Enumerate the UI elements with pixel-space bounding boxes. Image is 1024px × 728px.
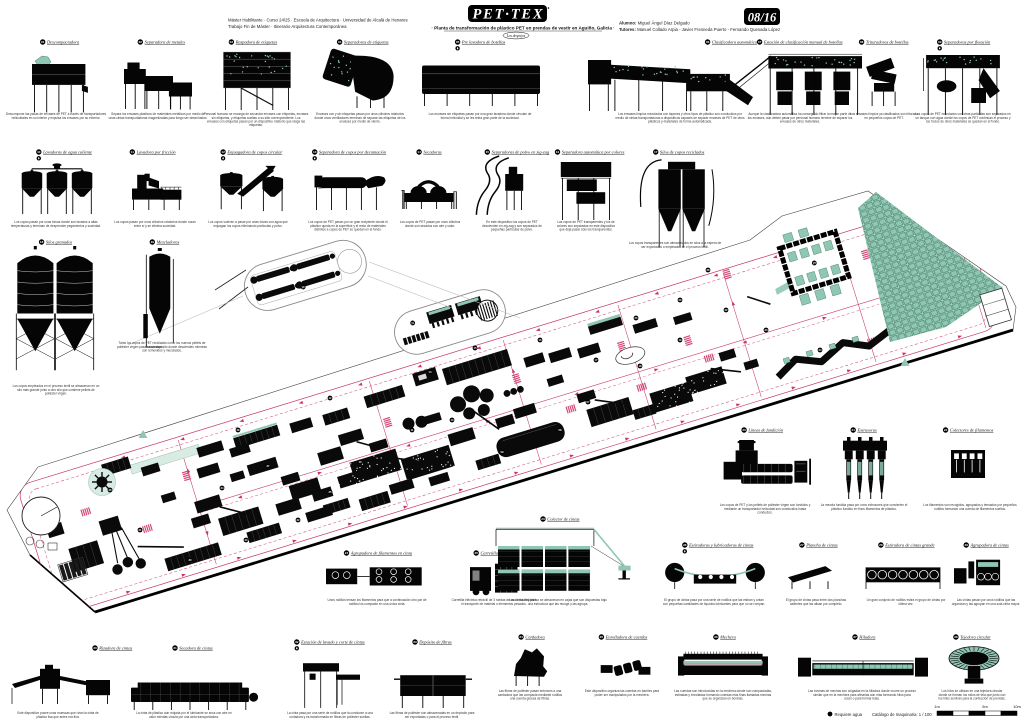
svg-text:13: 13 (451, 418, 454, 422)
svg-text:31: 31 (139, 528, 142, 532)
svg-text:Trituradoras de botellas: Trituradoras de botellas (866, 39, 909, 44)
svg-text:22: 22 (725, 308, 728, 312)
svg-text:37: 37 (267, 464, 270, 468)
svg-text:15: 15 (474, 346, 477, 350)
svg-text:Secadoras: Secadoras (423, 149, 442, 154)
svg-text:32: 32 (297, 518, 300, 522)
svg-text:Rizadora de cintas: Rizadora de cintas (98, 645, 132, 650)
svg-text:16: 16 (556, 150, 560, 154)
svg-text:Estación de lavado y corte de: Estación de lavado y corte de cintas (300, 639, 365, 644)
svg-text:Colector de cintas: Colector de cintas (547, 516, 579, 521)
svg-text:17: 17 (595, 358, 598, 362)
svg-text:5m: 5m (982, 704, 988, 709)
svg-text:Depósito de fibras: Depósito de fibras (418, 639, 452, 644)
svg-text:33: 33 (245, 538, 248, 542)
svg-text:24: 24 (819, 348, 822, 352)
svg-text:Los copos de PET pasan por un: Los copos de PET pasan por un gran recip… (308, 220, 388, 231)
svg-text:Pre lavadora de botellas: Pre lavadora de botellas (461, 39, 506, 44)
svg-text:04: 04 (338, 40, 342, 44)
svg-text:Las copos de PET transparentes: Las copos de PET transparentes y los dec… (557, 220, 616, 231)
svg-text:14: 14 (417, 150, 421, 154)
svg-text:Lavadoras de agua caliente: Lavadoras de agua caliente (42, 149, 92, 154)
svg-text:Separadoras de etiquetas: Separadoras de etiquetas (344, 39, 389, 44)
svg-text:19: 19 (679, 338, 682, 342)
svg-text:Plancha de cintas: Plancha de cintas (805, 542, 838, 547)
svg-text:15: 15 (486, 150, 490, 154)
svg-text:Extrusoras: Extrusoras (857, 427, 878, 432)
svg-text:Catálogo de maquinaria: 1 / 10: Catálogo de maquinaria: 1 / 100 (872, 712, 932, 717)
svg-text:Los envases sin etiquetas pasa: Los envases sin etiquetas pasan por una … (429, 112, 532, 120)
svg-text:17: 17 (654, 150, 658, 154)
svg-text:07: 07 (758, 40, 762, 44)
svg-text:10m: 10m (1013, 704, 1021, 709)
svg-text:08: 08 (559, 428, 562, 432)
svg-text:Enjuagadora de copos circular: Enjuagadora de copos circular (226, 149, 282, 154)
svg-text:13: 13 (313, 150, 317, 154)
svg-text:Separadora de copos por decant: Separadora de copos por decantación (319, 149, 387, 154)
svg-text:21: 21 (851, 428, 855, 432)
svg-text:Secadora de cintas: Secadora de cintas (179, 645, 213, 650)
svg-text:Lavadora por fricción: Lavadora por fricción (136, 149, 177, 154)
svg-text:09: 09 (938, 40, 942, 44)
svg-text:31: 31 (173, 646, 177, 650)
svg-text:03: 03 (230, 40, 234, 44)
svg-text:Silos granudos: Silos granudos (46, 239, 73, 244)
svg-text:10: 10 (359, 460, 362, 464)
svg-text:28: 28 (879, 543, 883, 547)
svg-text:Estación de clasificación manu: Estación de clasificación manual de bote… (763, 39, 843, 44)
svg-text:Las cintas pasan por unos rodi: Las cintas pasan por unos rodillos que l… (952, 598, 1021, 606)
svg-text:09: 09 (501, 450, 504, 454)
svg-text:Agrupadora de cintas: Agrupadora de cintas (970, 542, 1010, 547)
svg-text:Requiere agua: Requiere agua (835, 712, 863, 717)
svg-text:Separadora de metales: Separadora de metales (145, 39, 186, 44)
svg-text:27: 27 (800, 543, 804, 547)
svg-text:34: 34 (221, 486, 224, 490)
svg-text:Los copos de PET mezclados con: Los copos de PET mezclados con otras par… (915, 112, 1011, 123)
svg-text:PET·TEX: PET·TEX (473, 7, 543, 23)
svg-text:30: 30 (93, 646, 97, 650)
svg-text:Colectores de filamentos: Colectores de filamentos (950, 427, 994, 432)
svg-text:Separa los envases plásticos d: Separa los envases plásticos de material… (109, 112, 208, 120)
svg-text:23: 23 (541, 517, 545, 521)
svg-text:La mezcla fundida pasa por uno: La mezcla fundida pasa por unos extrusor… (821, 503, 908, 511)
svg-text:Enrolladora de cuerdas: Enrolladora de cuerdas (605, 634, 648, 639)
svg-text:18: 18 (40, 240, 44, 244)
svg-text:36: 36 (714, 635, 718, 639)
svg-text:Líneas de fundición: Líneas de fundición (747, 427, 783, 432)
svg-text:Cardadora: Cardadora (525, 634, 545, 639)
svg-text:38: 38 (237, 428, 240, 432)
svg-text:05: 05 (456, 40, 460, 44)
svg-text:23: 23 (765, 328, 768, 332)
svg-text:25: 25 (635, 316, 638, 320)
svg-text:Separadoras por flotación: Separadoras por flotación (944, 39, 991, 44)
svg-text:08: 08 (860, 40, 864, 44)
svg-text:28: 28 (707, 268, 710, 272)
svg-text:Los despojos: Los despojos (506, 34, 526, 38)
svg-text:Tejedora circular: Tejedora circular (960, 634, 991, 639)
svg-text:Mechera: Mechera (719, 634, 736, 639)
svg-text:26: 26 (679, 298, 682, 302)
svg-text:22: 22 (944, 428, 948, 432)
svg-text:36: 36 (109, 488, 112, 492)
svg-text:19: 19 (151, 240, 155, 244)
svg-text:Alumno: Miguel Ángel Díaz Delg: Alumno: Miguel Ángel Díaz Delgado (619, 21, 690, 26)
svg-text:14: 14 (429, 370, 432, 374)
svg-text:35: 35 (600, 635, 604, 639)
svg-text:Agrupadora de filamentos en ci: Agrupadora de filamentos en cinta (350, 550, 413, 555)
svg-text:El grupo de cintas pasa por un: El grupo de cintas pasa por una serie de… (663, 598, 765, 606)
svg-text:32: 32 (295, 640, 299, 644)
svg-text:20: 20 (742, 428, 746, 432)
svg-text:Separadora automática por colo: Separadora automática por colores (562, 149, 625, 154)
svg-text:El grupo de cintas pasa entre: El grupo de cintas pasa entre dos planch… (786, 598, 847, 606)
svg-text:35: 35 (329, 490, 332, 494)
svg-text:Separadoras de polvo en zig-za: Separadoras de polvo en zig-zag (492, 149, 550, 154)
svg-text:Raspadora de etiquetas: Raspadora de etiquetas (235, 39, 278, 44)
svg-text:12: 12 (221, 150, 225, 154)
svg-text:La cinta de plástico aún mojad: La cinta de plástico aún mojada por el l… (136, 711, 232, 719)
svg-text:30: 30 (189, 558, 192, 562)
svg-text:Este dispositivo organiza las: Este dispositivo organiza las cuerdas en… (585, 689, 660, 697)
svg-text:Los copos de PET pasan por uno: Los copos de PET pasan por unos cilindro… (400, 220, 461, 228)
svg-text:29: 29 (964, 543, 968, 547)
svg-text:12: 12 (329, 396, 332, 400)
svg-text:34: 34 (519, 635, 523, 639)
svg-text:Descompone las pacas de envase: Descompone las pacas de envases de PET a… (6, 112, 107, 120)
svg-text:1m: 1m (934, 704, 940, 709)
svg-text:Clasificadora automática: Clasificadora automática (712, 39, 758, 44)
svg-text:Trabajo Fin de Máster · Itiner: Trabajo Fin de Máster · Itinerario Arqui… (228, 24, 347, 29)
svg-text:Los filamentos son recogidos,: Los filamentos son recogidos, agrupados … (923, 503, 1017, 511)
svg-text:24: 24 (345, 551, 349, 555)
svg-text:Estiradoras y lubricadoras de: Estiradoras y lubricadoras de cintas (688, 542, 754, 547)
svg-text:11: 11 (131, 150, 135, 154)
svg-text:La cinta pasa por una serie de: La cinta pasa por una serie de rodillos … (287, 711, 373, 719)
svg-text:Los hilos se utilizan en una t: Los hilos se utilizan en una tejedora ci… (938, 689, 1005, 700)
svg-text:38: 38 (954, 635, 958, 639)
svg-text:07: 07 (587, 400, 590, 404)
svg-text:Los copos vuelven a pasar por: Los copos vuelven a pasar por unas tolva… (208, 220, 288, 228)
svg-text:Hiladora: Hiladora (858, 634, 876, 639)
svg-text:01: 01 (41, 40, 45, 44)
svg-text:37: 37 (853, 635, 857, 639)
svg-text:06: 06 (706, 40, 710, 44)
svg-text:16: 16 (539, 338, 542, 342)
svg-text:26: 26 (683, 543, 687, 547)
svg-text:Tutores: Manuel Collado Arpia: Tutores: Manuel Collado Arpia - Javier F… (619, 27, 780, 32)
svg-text:Mezcladoras: Mezcladoras (156, 239, 180, 244)
svg-text:Descompactadora: Descompactadora (46, 39, 80, 44)
svg-text:10: 10 (37, 150, 41, 154)
svg-text:· Planta de transformación de: · Planta de transformación de plástico P… (431, 26, 614, 31)
svg-text:Silos de copos reciclados: Silos de copos reciclados (660, 149, 705, 154)
svg-text:18: 18 (639, 364, 642, 368)
svg-text:Máster Habilitante · Curso 24/: Máster Habilitante · Curso 24/25 · Escue… (228, 18, 408, 23)
svg-text:25: 25 (474, 551, 478, 555)
svg-text:02: 02 (139, 40, 143, 44)
svg-text:33: 33 (413, 640, 417, 644)
svg-text:Los copos transparentes son al: Los copos transparentes son almacenados … (629, 241, 721, 249)
svg-text:Los copos pasan por unas tolva: Los copos pasan por unas tolvas donde so… (11, 220, 101, 228)
svg-text:Estiradora de cintas grande: Estiradora de cintas grande (884, 542, 934, 547)
svg-text:08/16: 08/16 (748, 11, 777, 25)
